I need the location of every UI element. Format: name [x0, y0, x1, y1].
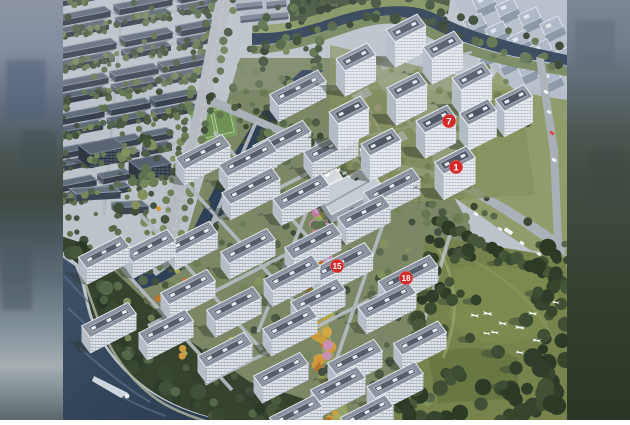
svg-text:1: 1 [453, 162, 459, 173]
svg-text:7: 7 [446, 116, 451, 127]
svg-text:18: 18 [401, 274, 411, 283]
svg-text:15: 15 [332, 262, 342, 271]
